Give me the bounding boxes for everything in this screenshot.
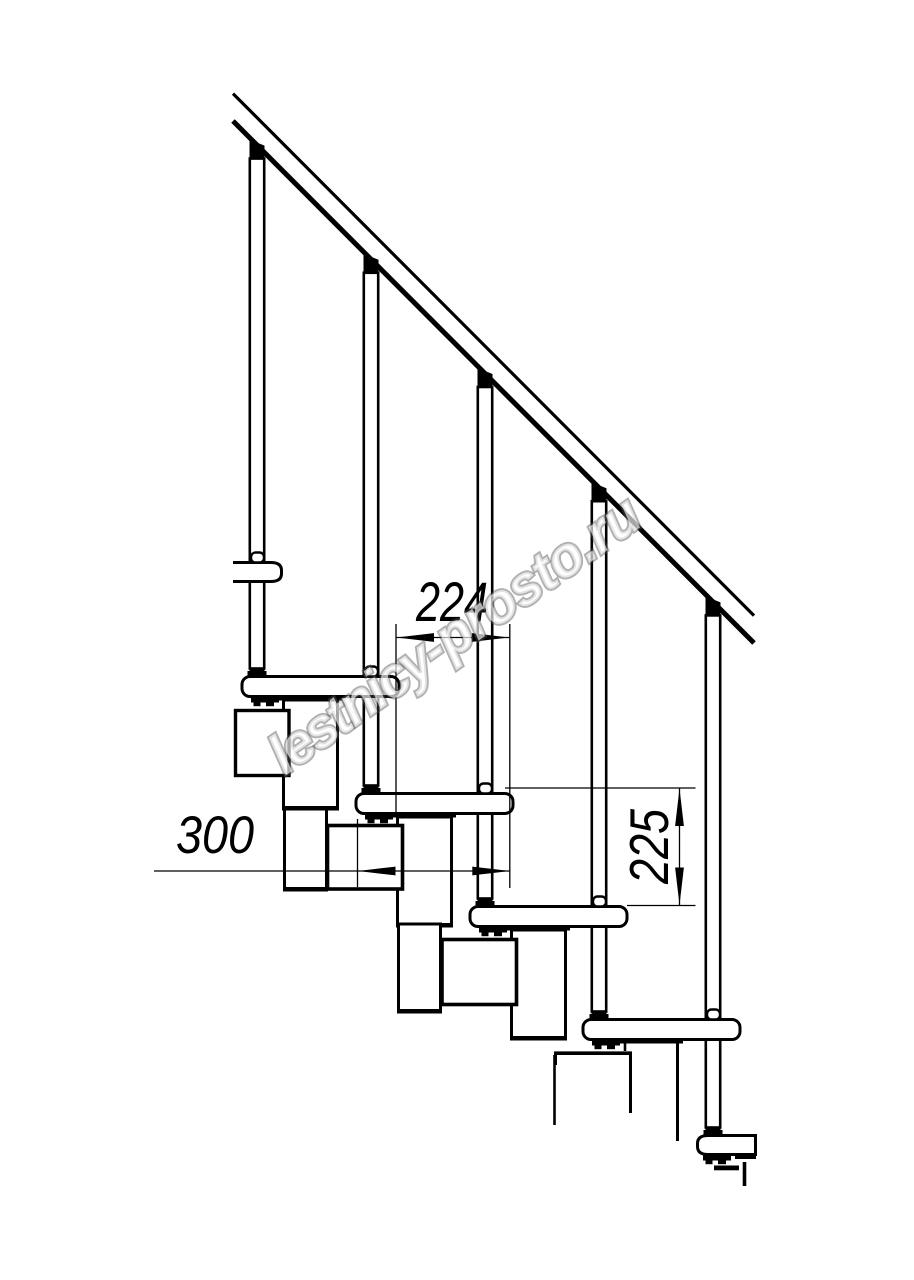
svg-text:300: 300 xyxy=(176,806,254,865)
svg-text:225: 225 xyxy=(618,809,680,885)
